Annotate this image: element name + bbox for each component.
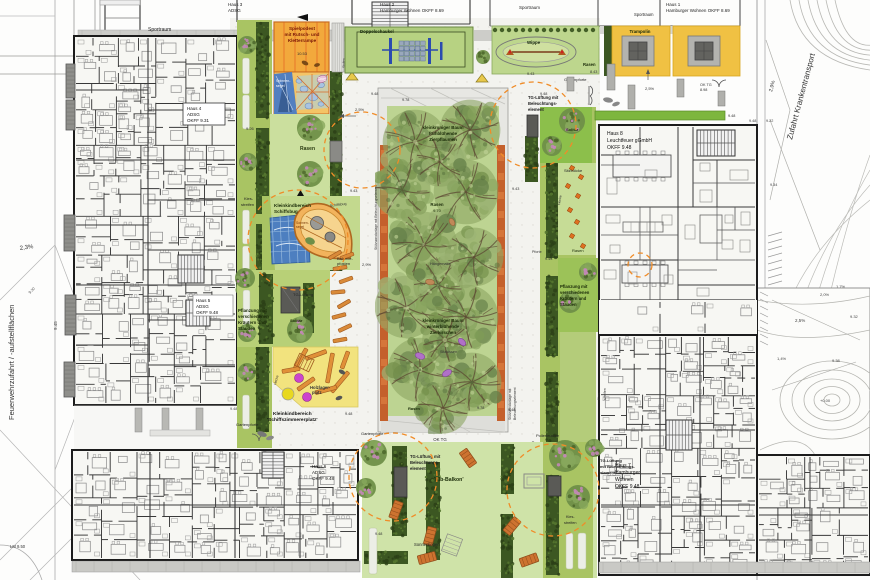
svg-text:ADSG: ADSG — [312, 470, 325, 475]
svg-text:9.48: 9.48 — [728, 114, 735, 118]
svg-text:'Schiffszimmererplatz': 'Schiffszimmererplatz' — [267, 417, 318, 423]
svg-text:Spinnen-: Spinnen- — [276, 79, 291, 83]
svg-text:Kräutern und: Kräutern und — [238, 320, 266, 325]
svg-text:Spielpodest: Spielpodest — [289, 26, 316, 31]
svg-text:ADSG: ADSG — [228, 8, 241, 13]
svg-text:Haus 6: Haus 6 — [312, 464, 327, 469]
svg-text:mit Rutsch- und: mit Rutsch- und — [285, 32, 320, 37]
svg-text:Stützwandanlage mit Beleuchtun: Stützwandanlage mit Beleuchtungselement — [374, 185, 378, 250]
svg-text:Rasen: Rasen — [300, 146, 315, 152]
svg-text:+0.00: +0.00 — [820, 398, 831, 403]
svg-text:Pflanzung mit: Pflanzung mit — [238, 308, 267, 313]
svg-text:Haus 1: Haus 1 — [666, 2, 681, 7]
svg-text:1,4%: 1,4% — [777, 356, 787, 361]
svg-text:Haus 2: Haus 2 — [380, 2, 395, 7]
svg-text:9.48: 9.48 — [371, 92, 378, 96]
svg-text:9.48: 9.48 — [345, 412, 352, 416]
svg-text:Kleinkindbereich: Kleinkindbereich — [273, 411, 312, 417]
svg-text:kleinkroniger Baum: kleinkroniger Baum — [423, 318, 464, 323]
svg-text:Beleuchtungselement: Beleuchtungselement — [513, 387, 517, 420]
svg-text:streifen: streifen — [603, 388, 607, 400]
svg-text:Rasen: Rasen — [572, 248, 584, 253]
svg-text:mit Beleuchtungs-: mit Beleuchtungs- — [600, 464, 636, 469]
svg-text:TG-Lüftung: TG-Lüftung — [293, 292, 313, 297]
svg-text:Schiffsbug: Schiffsbug — [274, 209, 298, 214]
svg-text:ADSG: ADSG — [187, 112, 200, 117]
svg-text:'Elb-Balkon': 'Elb-Balkon' — [434, 477, 464, 483]
svg-text:Solitär: Solitär — [290, 318, 303, 323]
svg-text:9.43: 9.43 — [350, 189, 357, 193]
svg-text:verschiedenen: verschiedenen — [560, 290, 590, 295]
svg-text:TG-Lüftung mit: TG-Lüftung mit — [528, 95, 559, 100]
svg-text:OK TG: OK TG — [433, 437, 447, 442]
svg-text:Stauden: Stauden — [238, 326, 256, 331]
svg-text:9.43: 9.43 — [512, 187, 519, 191]
svg-text:streifen: streifen — [564, 521, 576, 525]
svg-text:9.48: 9.48 — [508, 408, 515, 412]
svg-text:Zierpflaumen: Zierpflaumen — [429, 137, 457, 142]
svg-text:Hamburger Wohnen OKFF 8.69: Hamburger Wohnen OKFF 8.69 — [666, 8, 730, 13]
svg-text:LM 9.50: LM 9.50 — [10, 544, 26, 549]
svg-text:streifen: streifen — [241, 202, 254, 207]
svg-text:Gartenpforte: Gartenpforte — [361, 431, 384, 436]
svg-text:Kies-: Kies- — [597, 391, 601, 400]
svg-text:Sonnenliegen: Sonnenliegen — [414, 542, 440, 547]
svg-text:8.98: 8.98 — [700, 88, 707, 92]
svg-text:2,0%: 2,0% — [820, 292, 830, 297]
svg-text:Rasen: Rasen — [430, 202, 443, 207]
svg-text:9.48: 9.48 — [230, 407, 237, 411]
svg-text:kleinkroniger Baum: kleinkroniger Baum — [423, 125, 464, 130]
svg-text:8.43: 8.43 — [590, 70, 597, 74]
svg-text:Trampolin: Trampolin — [630, 29, 651, 34]
svg-text:Feuerwehrzufahrt / -aufstellfl: Feuerwehrzufahrt / -aufstellflächen — [7, 305, 16, 420]
svg-text:Hamburger Wohnen OKFF 8.69: Hamburger Wohnen OKFF 8.69 — [380, 8, 444, 13]
svg-text:9.78: 9.78 — [477, 406, 484, 410]
svg-text:Doppelschaukel: Doppelschaukel — [360, 29, 394, 34]
svg-text:Beleuchtungs-: Beleuchtungs- — [528, 101, 558, 106]
svg-text:9.70: 9.70 — [433, 208, 442, 213]
svg-text:element: element — [410, 466, 426, 471]
svg-text:platz: platz — [312, 390, 322, 395]
svg-text:Wippe: Wippe — [527, 40, 541, 45]
svg-text:Sitzblöcke: Sitzblöcke — [564, 168, 583, 173]
svg-text:9.22: 9.22 — [766, 119, 773, 123]
svg-text:Kleinkindbereich: Kleinkindbereich — [274, 203, 311, 208]
svg-text:Pflanzung mit: Pflanzung mit — [560, 284, 588, 289]
svg-text:Sportraum: Sportraum — [634, 12, 654, 17]
svg-text:segel: segel — [276, 84, 285, 88]
svg-text:Sportraum: Sportraum — [519, 5, 540, 10]
svg-text:Leuchtfeuer gGmbH: Leuchtfeuer gGmbH — [607, 138, 652, 144]
svg-text:Wohnen: Wohnen — [615, 477, 634, 483]
svg-text:Haus 5: Haus 5 — [196, 298, 211, 303]
svg-text:Haus 3: Haus 3 — [228, 2, 243, 7]
svg-text:frühblühende: frühblühende — [429, 131, 458, 136]
svg-text:Solitär: Solitär — [566, 127, 579, 132]
svg-text:Hängematte: Hängematte — [430, 262, 451, 266]
svg-text:element: element — [600, 470, 616, 475]
svg-text:9.38: 9.38 — [832, 358, 841, 363]
svg-text:OK TG: OK TG — [700, 83, 712, 87]
svg-text:OKFF 9.31: OKFF 9.31 — [187, 118, 210, 123]
svg-text:9.32: 9.32 — [850, 314, 859, 319]
svg-text:9.78: 9.78 — [402, 98, 409, 102]
svg-text:Rasen: Rasen — [583, 62, 596, 67]
svg-text:OKFF 9.48: OKFF 9.48 — [615, 484, 640, 490]
svg-text:Sitzkissen: Sitzkissen — [440, 350, 457, 354]
svg-text:9.45: 9.45 — [53, 321, 58, 330]
svg-text:Rasen: Rasen — [408, 406, 421, 411]
svg-text:Pforte: Pforte — [532, 250, 542, 254]
svg-text:Pollerleuchte: Pollerleuchte — [536, 433, 560, 438]
svg-text:9.26: 9.26 — [246, 126, 255, 131]
svg-text:verschiedenen: verschiedenen — [238, 314, 269, 319]
svg-text:Hamburger: Hamburger — [615, 470, 640, 476]
svg-text:Zierkirschen: Zierkirschen — [430, 330, 456, 335]
svg-text:TG-Lüftung: TG-Lüftung — [600, 458, 622, 463]
svg-text:OKFF 9.48: OKFF 9.48 — [607, 145, 632, 151]
svg-text:Haus 4: Haus 4 — [187, 106, 202, 111]
svg-text:Haus 8: Haus 8 — [607, 131, 623, 137]
svg-text:TG-Lüftung mit: TG-Lüftung mit — [410, 454, 441, 459]
svg-text:winterblühende: winterblühende — [426, 324, 460, 329]
svg-text:Kies-: Kies- — [244, 196, 254, 201]
svg-text:OKFF 9.48: OKFF 9.48 — [312, 476, 335, 481]
svg-text:9.43: 9.43 — [545, 257, 552, 261]
svg-text:9.43: 9.43 — [527, 72, 534, 76]
svg-text:element: element — [528, 107, 544, 112]
svg-text:OKFF 9.48: OKFF 9.48 — [196, 310, 219, 315]
svg-text:Kletterrampe: Kletterrampe — [288, 38, 317, 43]
svg-text:Sportraum: Sportraum — [148, 27, 171, 33]
svg-text:9.48: 9.48 — [375, 532, 382, 536]
svg-text:ADSG: ADSG — [196, 304, 209, 309]
svg-text:9.34: 9.34 — [770, 183, 777, 187]
svg-text:2,5%: 2,5% — [355, 107, 365, 112]
svg-text:Kräutern und: Kräutern und — [560, 296, 587, 301]
svg-text:2,9%: 2,9% — [362, 262, 372, 267]
svg-text:2,5%: 2,5% — [645, 86, 655, 91]
svg-text:Gartenpforte: Gartenpforte — [236, 422, 259, 427]
svg-text:Kies-: Kies- — [566, 515, 575, 519]
svg-text:Stützwandanlage mit: Stützwandanlage mit — [508, 388, 512, 420]
svg-text:10.53: 10.53 — [297, 51, 308, 56]
svg-text:9.48: 9.48 — [749, 119, 756, 123]
svg-text:Stauden: Stauden — [560, 302, 577, 307]
svg-text:2,5%: 2,5% — [795, 318, 805, 323]
svg-text:segel: segel — [296, 225, 304, 229]
